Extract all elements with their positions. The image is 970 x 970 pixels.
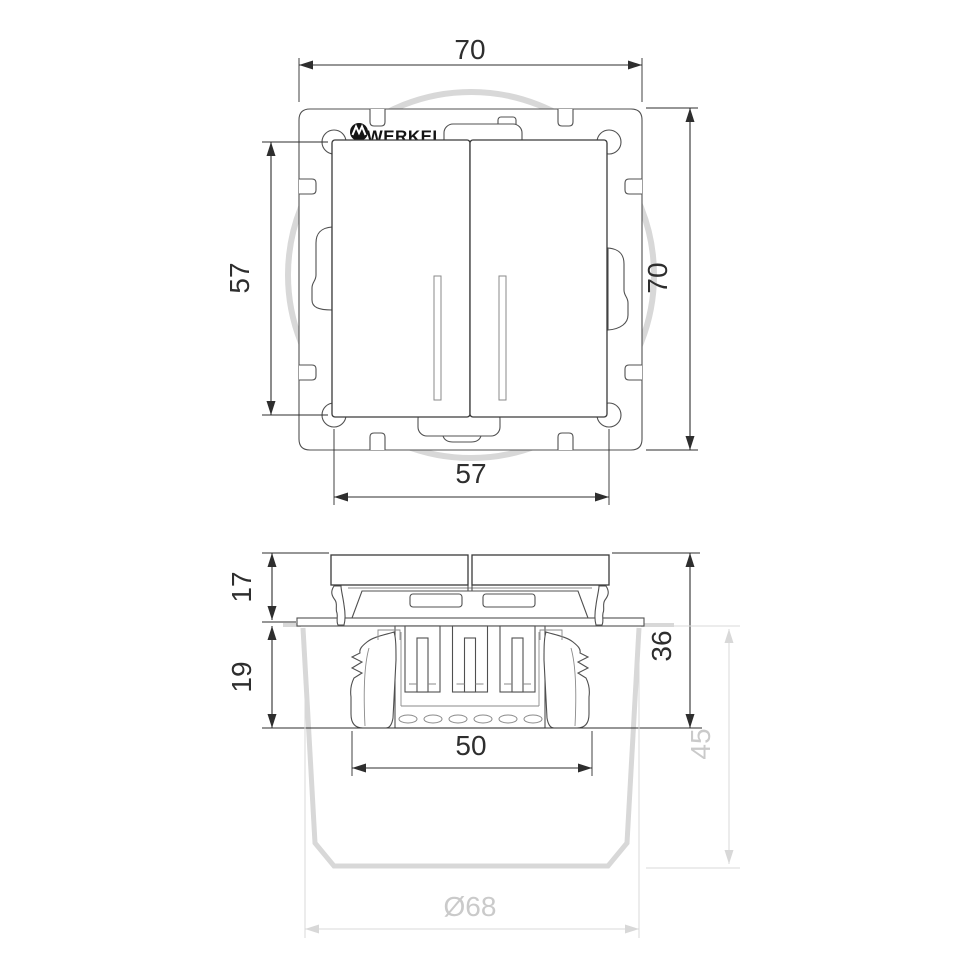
dim-label-50: 50 — [455, 730, 486, 761]
dim-label-70-top: 70 — [454, 34, 485, 65]
dim-label-45-ghost: 45 — [685, 728, 716, 759]
frame-notch — [625, 179, 642, 194]
front-view: WERKEL — [288, 92, 654, 458]
frame-notch — [370, 109, 385, 126]
dim-claw-span: 50 — [352, 730, 592, 776]
indicator-slot-right — [499, 276, 506, 400]
frame-notch — [558, 433, 573, 450]
frame-notch — [370, 433, 385, 450]
indicator-slot-left — [434, 276, 441, 400]
frame-notch — [299, 365, 316, 380]
dim-label-diameter-68-ghost: Ø68 — [444, 891, 497, 922]
frame-notch — [558, 109, 573, 126]
flange-plate — [297, 618, 644, 626]
dim-front-protrusion: 17 — [226, 553, 329, 622]
support-frame-slot — [483, 594, 535, 607]
dim-label-57-bottom: 57 — [455, 458, 486, 489]
frame-tab-lip — [443, 436, 481, 442]
key-profile-right — [472, 555, 609, 585]
rocker-left[interactable] — [332, 140, 470, 417]
terminal-tower — [453, 626, 488, 692]
key-profile-left — [331, 555, 468, 585]
frame-notch — [625, 365, 642, 380]
dim-label-36: 36 — [646, 630, 677, 661]
terminal-tower — [405, 626, 440, 692]
dim-overall-height-right: 70 — [642, 108, 698, 450]
dimension-drawing: WERKEL 70 70 57 57 — [0, 0, 970, 970]
dim-label-19: 19 — [226, 661, 257, 692]
frame-notch — [299, 179, 316, 194]
support-frame-profile — [352, 591, 588, 618]
dim-label-70-right: 70 — [642, 262, 673, 293]
support-frame-slot — [410, 594, 462, 607]
dim-label-57-left: 57 — [224, 262, 255, 293]
side-view — [283, 555, 674, 866]
dim-label-17: 17 — [226, 571, 257, 602]
rocker-right[interactable] — [470, 140, 607, 417]
dim-recess-upper: 19 — [226, 626, 277, 728]
terminal-tower — [500, 626, 535, 692]
